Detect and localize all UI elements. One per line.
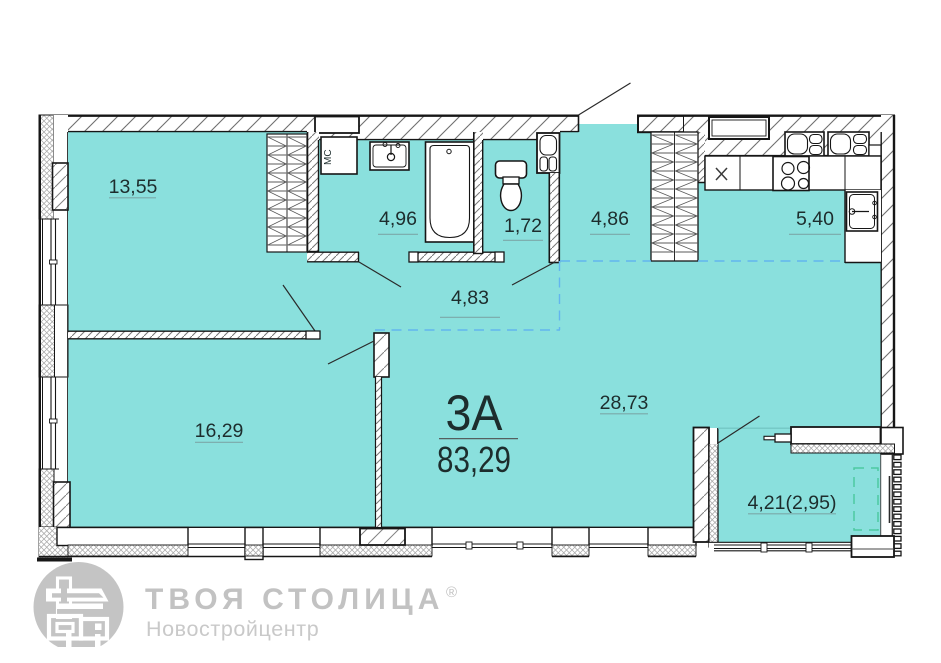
svg-text:5,40: 5,40 xyxy=(796,208,834,230)
svg-text:4,83: 4,83 xyxy=(451,287,489,309)
svg-text:4,96: 4,96 xyxy=(379,208,417,230)
svg-text:3А: 3А xyxy=(446,385,504,441)
svg-text:4,21(2,95): 4,21(2,95) xyxy=(748,492,837,514)
svg-text:16,29: 16,29 xyxy=(195,420,244,442)
svg-text:28,73: 28,73 xyxy=(600,392,649,414)
svg-text:83,29: 83,29 xyxy=(437,439,511,480)
svg-text:1,72: 1,72 xyxy=(504,215,542,237)
svg-text:13,55: 13,55 xyxy=(109,176,158,198)
svg-text:®: ® xyxy=(446,584,457,601)
svg-text:ТВОЯ СТОЛИЦА: ТВОЯ СТОЛИЦА xyxy=(145,583,444,616)
svg-text:Новостройцентр: Новостройцентр xyxy=(146,617,319,641)
svg-text:4,86: 4,86 xyxy=(591,208,629,230)
svg-text:МС: МС xyxy=(323,149,334,165)
